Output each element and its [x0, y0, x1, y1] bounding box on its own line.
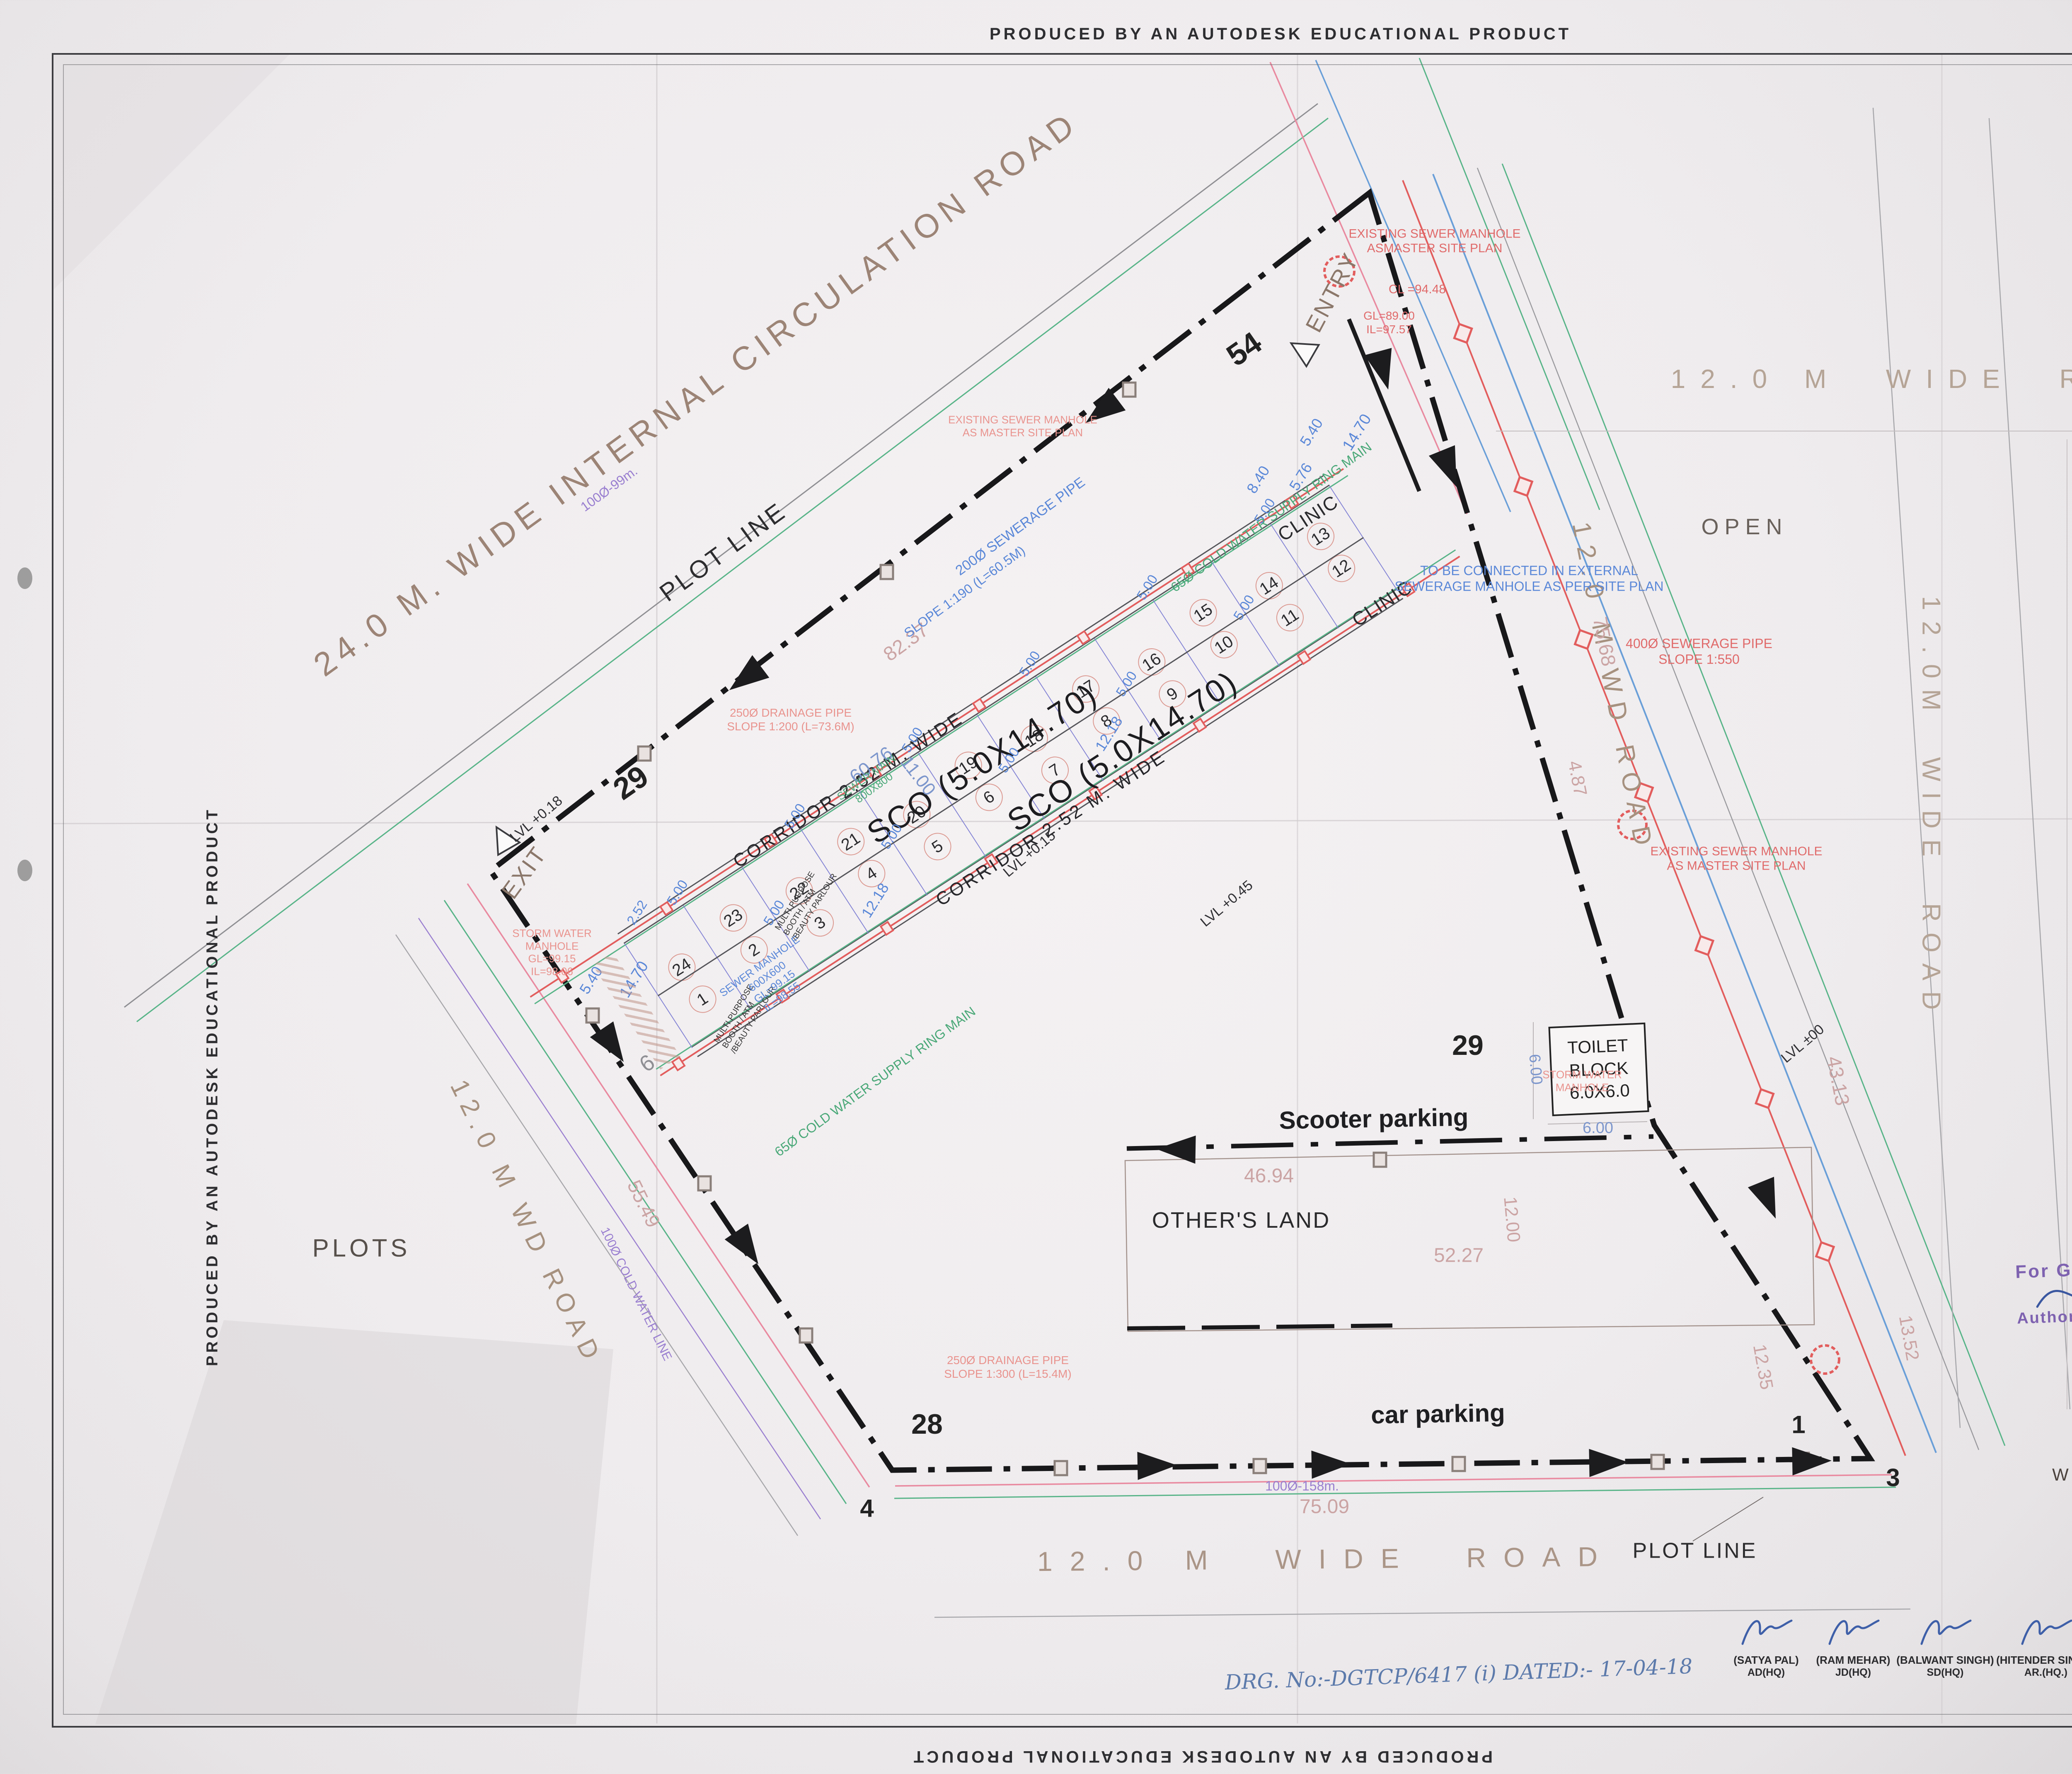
plan-label: DRG. No:-DGTCP/6417 (i) DATED:- 17-04-18 [1225, 1654, 1693, 1695]
plan-label: 46.94 [1244, 1165, 1294, 1188]
approval-name: (HITENDER SINGH) [1984, 1654, 2072, 1667]
plan-label: 75.09 [1300, 1495, 1349, 1519]
plan-label: OPEN [1701, 514, 1788, 540]
plan-label: 4.87 [1563, 759, 1591, 798]
plan-label: 82.37 [879, 618, 933, 666]
plan-label: 54 [1220, 325, 1268, 374]
plan-label: 12.00 [1499, 1196, 1524, 1243]
plan-label: 29 [606, 758, 655, 807]
plan-label: LVL +0.15 [1000, 827, 1059, 881]
plan-label: 28 [911, 1408, 943, 1441]
plan-label: 12.0M WIDE ROAD [1916, 596, 1946, 1020]
plan-label: 12.0 M WIDE ROAD [1037, 1541, 1615, 1578]
plan-label: EXIT [496, 841, 552, 904]
plan-label: 12.35 [1748, 1343, 1777, 1391]
plan-label: 52.27 [1434, 1244, 1484, 1268]
plan-label: 65Ø COLD WATER SUPPLY RING MAIN [772, 1004, 979, 1160]
plan-label: STORM WATER MANHOLE GL=99.15 IL=98.06 [512, 927, 592, 978]
plan-label: LVL +0.45 [1197, 877, 1256, 931]
plan-label: TO BE CONNECTED IN EXTERNAL SEWERAGE MAN… [1394, 563, 1663, 594]
plan-label: EXISTING SEWER MANHOLE AS MASTER SITE PL… [948, 413, 1097, 439]
plan-label: SEWER MAIN 800X800 [835, 752, 906, 813]
plan-annotations-layer: 24.0 M. WIDE INTERNAL CIRCULATION ROAD12… [0, 0, 2072, 1774]
plan-label: PLOTS [312, 1234, 411, 1263]
plan-label: OTHER'S LAND [1152, 1207, 1330, 1234]
plan-label: EXISTING SEWER MANHOLE AS MASTER SITE PL… [1650, 844, 1822, 874]
plan-label: 12.0 M WD ROAD [1566, 519, 1660, 856]
plan-label: SLOPE 1:190 (L=60.5M) [901, 543, 1028, 641]
plan-label: 6.00 [1583, 1119, 1613, 1138]
plan-label: 250Ø DRAINAGE PIPE SLOPE 1:300 (L=15.4M) [944, 1353, 1071, 1381]
plan-label: LVL +0.18 [507, 792, 566, 846]
plan-label: CL =94.48 [1389, 282, 1446, 296]
plan-label: 60.76 [845, 742, 897, 788]
plan-label: 29 [1452, 1029, 1484, 1062]
plan-label: STORM WATER MANHOLE [1542, 1068, 1622, 1093]
plan-label: 4 [860, 1494, 874, 1524]
scanned-site-plan-sheet: { "edge_text": "PRODUCED BY AN AUTODESK … [0, 0, 2072, 1774]
plan-label: 65Ø COLD WATER SUPPLY RING MAIN [1168, 439, 1375, 596]
plan-label: car parking [1371, 1398, 1506, 1430]
plan-label: 43.13 [1821, 1054, 1854, 1108]
approval-signature [1984, 1608, 2072, 1654]
plan-label: 24.0 M. WIDE INTERNAL CIRCULATION ROAD [306, 103, 1086, 685]
plan-label: PLOT LINE [654, 497, 792, 608]
plan-label: ENTRY [1300, 247, 1365, 337]
plan-label: PLOT LINE [1633, 1538, 1757, 1563]
plan-label: 100Ø-99m. [578, 463, 641, 515]
plan-label: 55.49 [622, 1177, 665, 1232]
plan-label: 250Ø DRAINAGE PIPE SLOPE 1:200 (L=73.6M) [727, 706, 854, 733]
plan-label: W [2052, 1464, 2069, 1485]
plan-label: Scooter parking [1279, 1103, 1469, 1136]
plan-label: 13.52 [1894, 1314, 1923, 1362]
plan-label: 1 [1791, 1410, 1805, 1440]
approval-4: (HITENDER SINGH)AR.(HQ.) [1984, 1608, 2072, 1679]
plan-label: 400Ø SEWERAGE PIPE SLOPE 1:550 [1626, 636, 1772, 667]
approval-title: AR.(HQ.) [1984, 1667, 2072, 1679]
plan-label: 11.00 [896, 752, 940, 800]
plan-label: 12.0 M WIDE ROAD [1671, 364, 2072, 395]
plan-label: 100Ø COLD WATER LINE [598, 1225, 675, 1363]
plan-label: 200Ø SEWERAGE PIPE [952, 474, 1088, 579]
plan-label: 6.00 [1525, 1053, 1546, 1086]
plan-label: 12.0 M WD ROAD [444, 1075, 609, 1371]
plan-label: LVL ±00 [1778, 1021, 1828, 1066]
plan-label: 100Ø-158m. [1265, 1478, 1339, 1494]
plan-label: 6 [634, 1049, 660, 1078]
plan-label: EXISTING SEWER MANHOLE ASMASTER SITE PLA… [1348, 227, 1520, 256]
plan-label: 75.68 [1588, 615, 1620, 669]
plan-label: SEWER MANHOLE 600X600 GL=99.15 IL=98.55 [717, 933, 824, 1030]
plan-label: GL=89.00 IL=97.57 [1363, 309, 1415, 336]
plan-label: 3 [1886, 1464, 1900, 1493]
